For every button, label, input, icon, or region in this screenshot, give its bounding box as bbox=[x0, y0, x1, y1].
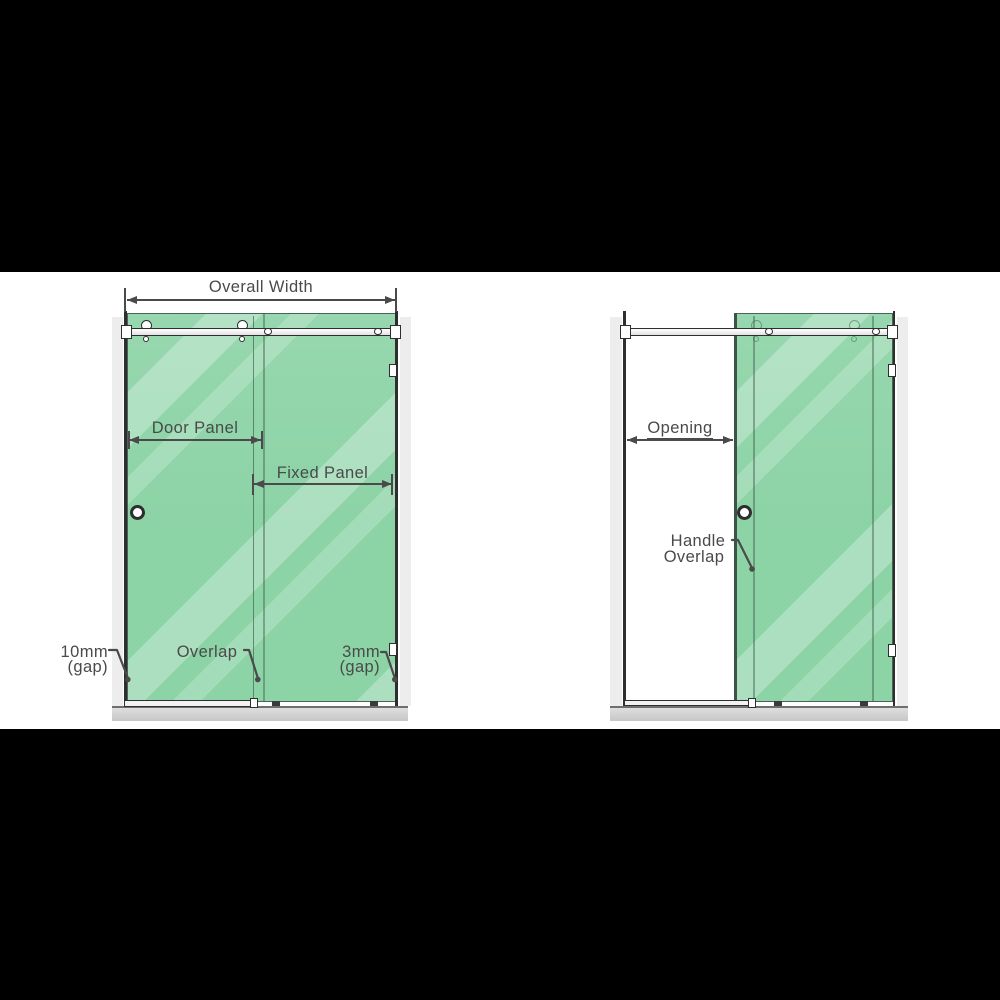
left-gap-label-line2: (gap) bbox=[52, 659, 108, 676]
wall-bracket-icon bbox=[389, 643, 397, 656]
floor-track bbox=[624, 700, 754, 706]
letterbox-bottom bbox=[0, 729, 1000, 1000]
wall-return-right bbox=[897, 317, 909, 706]
wall-line-left bbox=[623, 311, 626, 706]
dimension-tick bbox=[395, 288, 397, 312]
arrowhead-left-icon bbox=[127, 296, 137, 304]
door-bottom-seal bbox=[124, 700, 256, 707]
fixed-panel-clamp-icon bbox=[374, 328, 382, 336]
shower-tray bbox=[610, 706, 908, 721]
fixed-panel-left-edge bbox=[253, 316, 255, 701]
fixed-panel-clamp-icon bbox=[264, 328, 272, 336]
door-panel-right-edge bbox=[263, 314, 265, 702]
wall-bracket-icon bbox=[888, 644, 896, 657]
shower-tray bbox=[112, 706, 408, 721]
wall-return-left bbox=[610, 317, 622, 706]
wall-bracket-icon bbox=[888, 364, 896, 377]
bottom-clamp-icon bbox=[370, 701, 378, 706]
shower-screen-dimension-diagram: Overall Width Door Panel Fixed Panel 10m… bbox=[0, 0, 1000, 1000]
overall-width-dimension-line bbox=[127, 299, 395, 301]
bottom-clamp-icon bbox=[774, 701, 782, 706]
wall-return-right bbox=[400, 317, 411, 706]
fixed-panel-left-edge bbox=[753, 316, 755, 701]
overall-width-label: Overall Width bbox=[126, 279, 396, 296]
rail-end-cap-left bbox=[121, 325, 132, 339]
rail-end-cap-right bbox=[390, 325, 401, 339]
right-gap-label-line2: (gap) bbox=[326, 659, 380, 676]
arrowhead-left-icon bbox=[254, 480, 264, 488]
door-panel-left-edge bbox=[734, 313, 737, 702]
top-rail bbox=[623, 328, 895, 336]
dimension-tick bbox=[128, 431, 130, 449]
glass-panels bbox=[735, 313, 893, 702]
bottom-clamp-icon bbox=[860, 701, 868, 706]
handle-overlap-label-line2: Overlap bbox=[652, 549, 736, 566]
bottom-guide-icon bbox=[748, 698, 756, 708]
arrowhead-left-icon bbox=[129, 436, 139, 444]
door-handle-icon bbox=[130, 505, 145, 520]
fixed-panel-clamp-icon bbox=[765, 328, 773, 336]
arrowhead-right-icon bbox=[723, 436, 733, 444]
arrowhead-right-icon bbox=[251, 436, 261, 444]
wall-return-left bbox=[112, 317, 123, 706]
dimension-tick bbox=[124, 288, 126, 312]
dimension-tick bbox=[391, 474, 393, 495]
opening-dimension-line bbox=[627, 439, 733, 441]
wall-bracket-icon bbox=[389, 364, 397, 377]
arrowhead-left-icon bbox=[627, 436, 637, 444]
letterbox-top bbox=[0, 0, 1000, 272]
bottom-clamp-icon bbox=[272, 701, 280, 706]
wall-line-left bbox=[124, 311, 127, 706]
opening-label: Opening bbox=[626, 420, 734, 439]
arrowhead-right-icon bbox=[385, 296, 395, 304]
door-handle-icon bbox=[737, 505, 752, 520]
fixed-panel-label: Fixed Panel bbox=[252, 465, 393, 482]
door-panel-dimension-line bbox=[129, 439, 261, 441]
overlap-label: Overlap bbox=[170, 644, 244, 661]
opening-label-text: Opening bbox=[647, 420, 712, 439]
bottom-guide-icon bbox=[250, 698, 258, 708]
fixed-panel-clamp-icon bbox=[872, 328, 880, 336]
fixed-panel-dimension-line bbox=[254, 483, 392, 485]
top-rail bbox=[124, 328, 398, 336]
rail-end-cap-left bbox=[620, 325, 631, 339]
dimension-tick bbox=[261, 431, 263, 449]
door-panel-right-edge bbox=[872, 316, 874, 701]
dimension-tick bbox=[252, 474, 254, 495]
door-panel-label: Door Panel bbox=[128, 420, 262, 437]
rail-end-cap-right bbox=[887, 325, 898, 339]
